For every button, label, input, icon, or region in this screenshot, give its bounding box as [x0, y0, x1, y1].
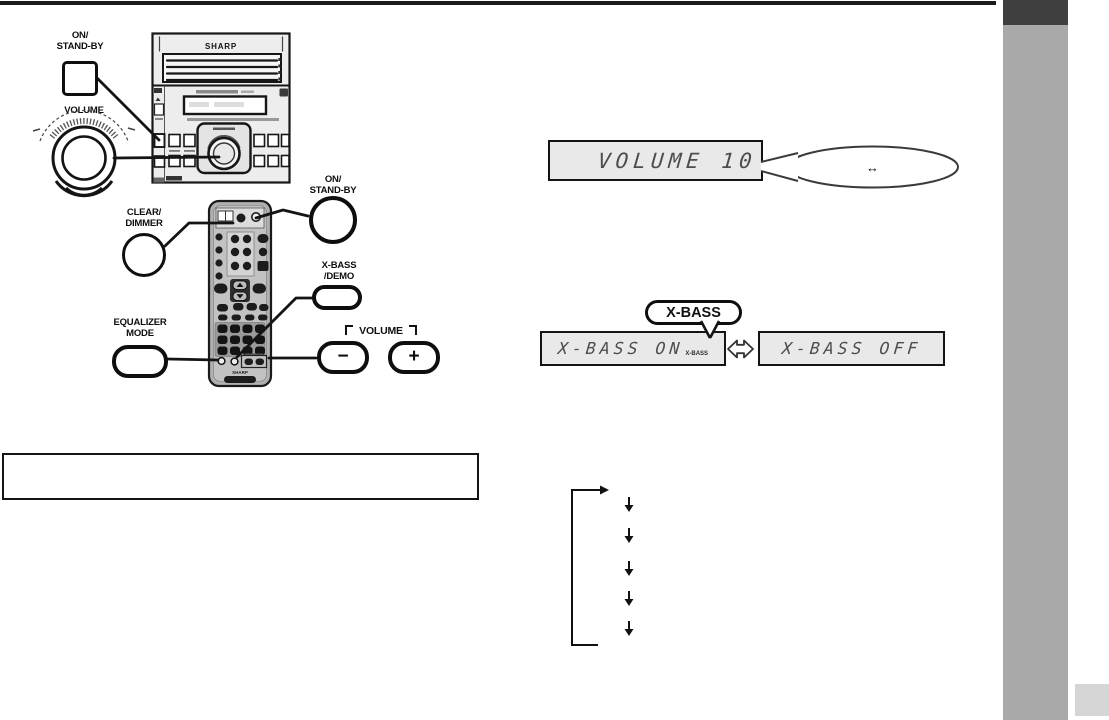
top-rule	[0, 1, 996, 5]
on-standby-remote-label: ON/ STAND-BY	[295, 175, 371, 196]
flow-step-arrows	[625, 497, 634, 636]
volume-display: VOLUME 10	[548, 140, 763, 181]
clear-dimmer-line1: CLEAR/	[106, 208, 182, 219]
clear-dimmer-button	[122, 233, 166, 277]
stereo-unit-illustration: SHARP	[153, 34, 290, 183]
remote-brand: SHARP	[232, 370, 248, 375]
remote-volume-buttons	[242, 356, 267, 368]
on-standby-remote-button	[309, 196, 357, 244]
bracket-right	[409, 325, 417, 335]
volume-minus-button: −	[317, 341, 369, 374]
volume-knob-callout	[33, 111, 135, 196]
unit-logo-badge	[154, 88, 162, 93]
plus-icon: +	[408, 346, 419, 368]
x-bass-demo-line1: X-BASS	[301, 261, 377, 272]
on-standby-main-line1: ON/	[42, 31, 118, 42]
volume-main-label: VOLUME	[46, 106, 122, 117]
chapter-tab	[1003, 0, 1068, 25]
volume-main-text: VOLUME	[46, 106, 122, 117]
volume-group-text: VOLUME	[359, 324, 403, 337]
volume-plus-button: +	[388, 341, 440, 374]
x-bass-off-text: X-BASS OFF	[781, 339, 922, 358]
on-standby-main-button	[62, 61, 98, 96]
remote-xbass-button	[231, 358, 238, 365]
unit-cd-logo	[280, 89, 289, 97]
equalizer-mode-line1: EQUALIZER	[95, 318, 185, 329]
x-bass-demo-label: X-BASS /DEMO	[301, 261, 377, 282]
clear-dimmer-line2: DIMMER	[106, 219, 182, 230]
unit-display-window	[184, 97, 266, 115]
x-bass-on-display: X-BASS ON X-BASS	[540, 331, 726, 366]
equalizer-mode-line2: MODE	[95, 329, 185, 340]
remote-number-pad	[218, 325, 266, 356]
x-bass-button-callout-text: X-BASS	[666, 305, 721, 321]
manual-page: SHARP	[0, 0, 1109, 720]
left-right-arrow-icon: ↔	[866, 160, 879, 175]
remote-control-illustration: SHARP	[209, 201, 271, 386]
sidebar-band	[1003, 25, 1068, 720]
equalizer-mode-label: EQUALIZER MODE	[95, 318, 185, 339]
x-bass-indicator: X-BASS	[685, 351, 708, 357]
x-bass-on-text: X-BASS ON	[557, 339, 684, 358]
unit-volume-knob	[198, 124, 251, 174]
on-standby-remote-line2: STAND-BY	[295, 186, 371, 197]
minus-icon: −	[337, 346, 348, 368]
unit-left-buttons	[155, 134, 196, 167]
page-corner-marker	[1075, 684, 1109, 716]
x-bass-demo-line2: /DEMO	[301, 272, 377, 283]
note-box	[2, 453, 479, 500]
swap-arrow-icon	[728, 341, 753, 358]
mode-cycle-flowchart	[572, 486, 634, 646]
volume-display-text: VOLUME 10	[597, 149, 758, 173]
bracket-left	[345, 325, 353, 335]
x-bass-button-callout: X-BASS	[645, 300, 742, 325]
on-standby-main-label: ON/ STAND-BY	[42, 31, 118, 52]
volume-range-callout-symbol: ↔	[790, 147, 955, 187]
on-standby-remote-line1: ON/	[295, 175, 371, 186]
remote-equalizer-button	[218, 358, 225, 365]
x-bass-demo-button	[312, 285, 362, 310]
clear-dimmer-label: CLEAR/ DIMMER	[106, 208, 182, 229]
unit-eject-button	[155, 104, 164, 115]
remote-power-button	[252, 213, 260, 221]
unit-brand: SHARP	[205, 42, 237, 51]
equalizer-mode-button	[112, 345, 168, 378]
volume-group-label: VOLUME	[327, 324, 435, 337]
x-bass-off-display: X-BASS OFF	[758, 331, 945, 366]
on-standby-main-line2: STAND-BY	[42, 42, 118, 53]
unit-right-buttons	[254, 135, 289, 167]
